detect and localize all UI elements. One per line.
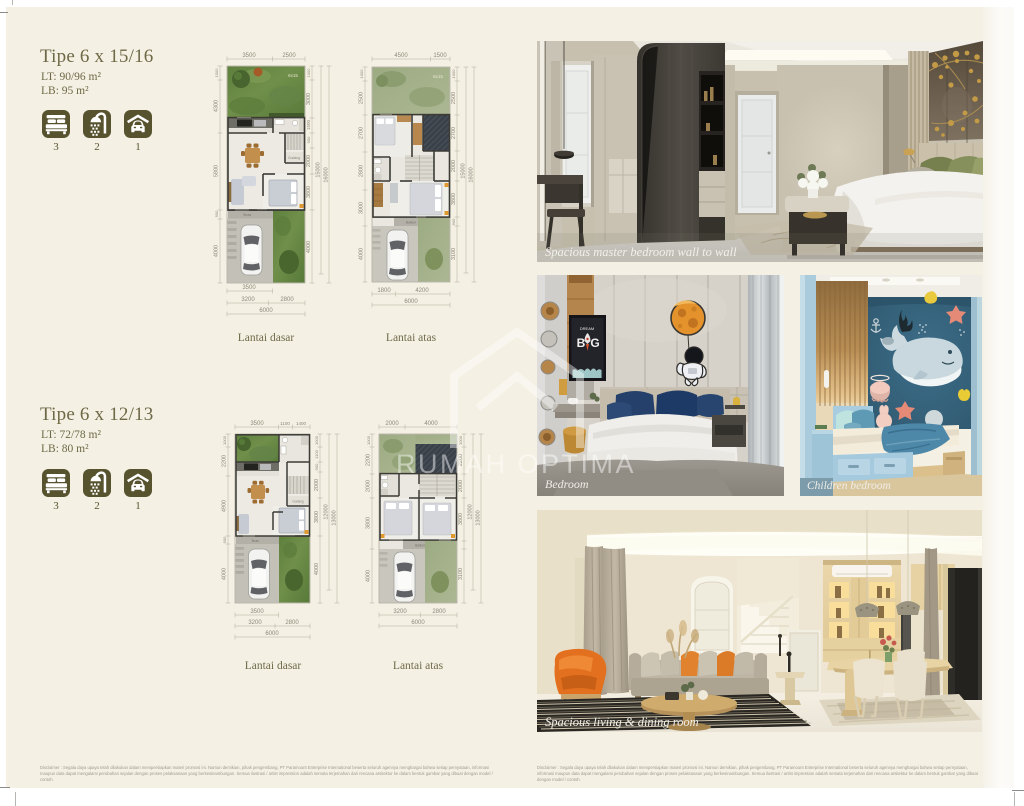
svg-text:3800: 3800 <box>451 193 457 205</box>
svg-text:4000: 4000 <box>359 248 365 260</box>
svg-text:2500: 2500 <box>359 92 365 104</box>
svg-text:4500: 4500 <box>394 53 408 59</box>
svg-text:Teras: Teras <box>243 213 252 217</box>
svg-text:2000: 2000 <box>451 160 457 172</box>
svg-text:1000: 1000 <box>222 435 227 445</box>
svg-text:3200: 3200 <box>241 297 255 303</box>
svg-text:Balkon: Balkon <box>415 544 425 548</box>
svg-text:3100: 3100 <box>451 248 457 260</box>
svg-text:Teras: Teras <box>251 539 259 543</box>
svg-text:6000: 6000 <box>411 620 425 626</box>
svg-text:3500: 3500 <box>242 285 256 291</box>
svg-text:2000: 2000 <box>458 480 464 492</box>
svg-text:2700: 2700 <box>359 127 365 139</box>
svg-text:2000: 2000 <box>314 479 320 491</box>
svg-text:2800: 2800 <box>359 165 365 177</box>
svg-text:2700: 2700 <box>451 127 457 139</box>
svg-text:1000: 1000 <box>451 69 456 79</box>
svg-text:1400: 1400 <box>296 421 307 426</box>
svg-text:900: 900 <box>314 463 319 470</box>
svg-text:6000: 6000 <box>404 299 418 305</box>
svg-text:15000: 15000 <box>461 163 467 178</box>
svg-text:Children bedroom: Children bedroom <box>807 480 891 492</box>
svg-text:12000: 12000 <box>468 504 474 519</box>
svg-text:900: 900 <box>306 136 311 143</box>
svg-text:2500: 2500 <box>451 92 457 104</box>
svg-text:2800: 2800 <box>285 620 299 626</box>
svg-text:5800: 5800 <box>214 165 220 177</box>
svg-text:1100: 1100 <box>314 449 319 458</box>
svg-text:2200: 2200 <box>222 455 228 467</box>
svg-text:1000: 1000 <box>306 68 311 78</box>
svg-text:Spacious master bedroom wall t: Spacious master bedroom wall to wall <box>545 245 737 259</box>
svg-text:3200: 3200 <box>248 620 262 626</box>
svg-text:2500: 2500 <box>282 53 296 59</box>
svg-text:4000: 4000 <box>424 421 438 427</box>
svg-text:3800: 3800 <box>366 517 372 529</box>
svg-text:4000: 4000 <box>314 563 320 575</box>
svg-text:3500: 3500 <box>250 421 264 427</box>
svg-text:Spacious living & dining room: Spacious living & dining room <box>545 715 699 729</box>
svg-text:2000: 2000 <box>385 421 399 427</box>
svg-text:1000: 1000 <box>314 435 319 445</box>
svg-text:4300: 4300 <box>214 100 220 112</box>
svg-text:2800: 2800 <box>432 609 446 615</box>
svg-text:1000: 1000 <box>366 435 371 445</box>
svg-text:3500: 3500 <box>242 53 256 59</box>
svg-text:900: 900 <box>222 536 227 543</box>
svg-text:900: 900 <box>214 210 219 217</box>
svg-text:1100: 1100 <box>280 421 290 426</box>
svg-text:2800: 2800 <box>280 297 294 303</box>
svg-text:16000: 16000 <box>324 167 330 182</box>
svg-text:3000: 3000 <box>359 202 365 214</box>
svg-text:4000: 4000 <box>366 570 372 582</box>
svg-text:6x15: 6x15 <box>288 73 298 78</box>
svg-text:3200: 3200 <box>393 609 407 615</box>
svg-text:4000: 4000 <box>222 568 228 580</box>
svg-text:Gudang: Gudang <box>292 500 304 504</box>
svg-text:1000: 1000 <box>359 69 364 79</box>
svg-text:16000: 16000 <box>469 167 475 182</box>
svg-text:2000: 2000 <box>366 480 372 492</box>
svg-text:Balkon: Balkon <box>406 221 416 225</box>
svg-text:Gudang: Gudang <box>288 156 300 160</box>
svg-text:6000: 6000 <box>265 631 279 637</box>
svg-text:13000: 13000 <box>476 510 482 525</box>
svg-text:2000: 2000 <box>306 155 312 167</box>
svg-text:3800: 3800 <box>458 513 464 525</box>
svg-text:15000: 15000 <box>316 162 322 177</box>
svg-text:900: 900 <box>451 218 456 225</box>
svg-text:3100: 3100 <box>458 568 464 580</box>
svg-text:4200: 4200 <box>415 288 429 294</box>
svg-text:1500: 1500 <box>306 119 311 130</box>
svg-text:1500: 1500 <box>433 53 447 59</box>
svg-text:1000: 1000 <box>214 68 219 78</box>
svg-text:6x15: 6x15 <box>433 74 443 79</box>
svg-text:3800: 3800 <box>306 186 312 198</box>
svg-text:3800: 3800 <box>314 511 320 523</box>
svg-text:4900: 4900 <box>222 500 228 512</box>
svg-text:12000: 12000 <box>324 504 330 519</box>
svg-text:13000: 13000 <box>332 510 338 525</box>
svg-text:3500: 3500 <box>250 609 264 615</box>
svg-text:4000: 4000 <box>306 241 312 253</box>
svg-text:6000: 6000 <box>259 308 273 314</box>
svg-text:1800: 1800 <box>377 288 391 294</box>
svg-text:2200: 2200 <box>366 454 372 466</box>
svg-text:3000: 3000 <box>306 93 312 105</box>
svg-text:4000: 4000 <box>214 245 220 257</box>
